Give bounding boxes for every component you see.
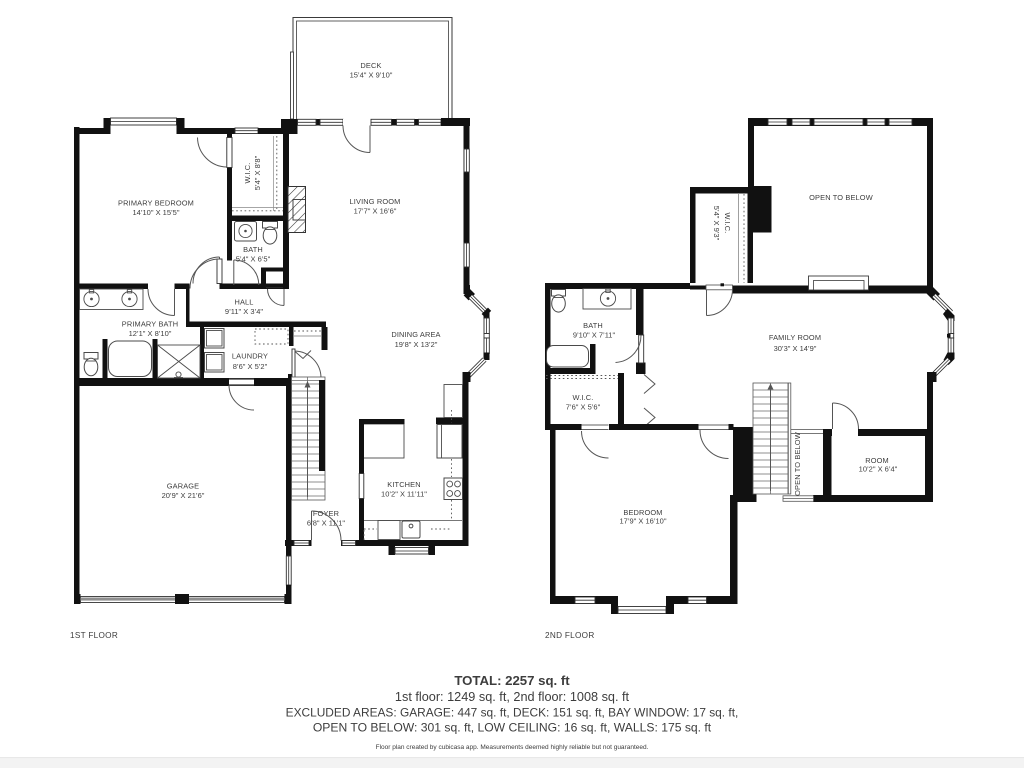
svg-text:12’1" X 8’10": 12’1" X 8’10" — [129, 329, 172, 338]
svg-text:5’4" X 6’5": 5’4" X 6’5" — [236, 255, 271, 264]
svg-text:10’2" X 6’4": 10’2" X 6’4" — [859, 465, 898, 474]
svg-text:OPEN TO BELOW: 301 sq. ft, LOW: OPEN TO BELOW: 301 sq. ft, LOW CEILING: … — [313, 721, 712, 735]
svg-text:PRIMARY BEDROOM: PRIMARY BEDROOM — [118, 199, 194, 208]
svg-text:BATH: BATH — [243, 245, 263, 254]
svg-text:5’4" X 8’8": 5’4" X 8’8" — [253, 155, 262, 190]
svg-text:20’9" X 21’6": 20’9" X 21’6" — [162, 491, 205, 500]
svg-text:FOYER: FOYER — [313, 509, 339, 518]
svg-text:KITCHEN: KITCHEN — [387, 480, 421, 489]
svg-text:DINING AREA: DINING AREA — [391, 330, 440, 339]
svg-text:1ST FLOOR: 1ST FLOOR — [70, 631, 118, 640]
svg-text:15’4" X 9’10": 15’4" X 9’10" — [350, 71, 393, 80]
svg-text:30’3" X 14’9": 30’3" X 14’9" — [774, 344, 817, 353]
svg-text:Floor plan created by cubicasa: Floor plan created by cubicasa app. Meas… — [376, 744, 649, 751]
svg-text:PRIMARY BATH: PRIMARY BATH — [122, 320, 178, 329]
svg-text:10’2" X 11’11": 10’2" X 11’11" — [381, 490, 427, 499]
svg-text:19’8" X 13’2": 19’8" X 13’2" — [395, 340, 438, 349]
svg-text:BATH: BATH — [583, 321, 603, 330]
svg-text:EXCLUDED AREAS: GARAGE: 447 sq: EXCLUDED AREAS: GARAGE: 447 sq. ft, DECK… — [286, 706, 739, 720]
svg-text:W.I.C.: W.I.C. — [572, 393, 593, 402]
svg-text:2ND FLOOR: 2ND FLOOR — [545, 631, 595, 640]
svg-text:HALL: HALL — [234, 298, 253, 307]
svg-text:OPEN TO BELOW: OPEN TO BELOW — [809, 193, 873, 202]
svg-text:17’7" X 16’6": 17’7" X 16’6" — [354, 207, 397, 216]
svg-text:FAMILY ROOM: FAMILY ROOM — [769, 333, 821, 342]
svg-text:8’6" X 5’2": 8’6" X 5’2" — [233, 362, 268, 371]
svg-text:LAUNDRY: LAUNDRY — [232, 352, 268, 361]
svg-text:14’10" X 15’5": 14’10" X 15’5" — [132, 208, 179, 217]
svg-text:9’10" X 7’11": 9’10" X 7’11" — [573, 331, 616, 340]
svg-text:9’11" X 3’4": 9’11" X 3’4" — [225, 307, 263, 316]
svg-text:LIVING ROOM: LIVING ROOM — [350, 197, 401, 206]
svg-text:W.I.C.: W.I.C. — [723, 212, 732, 233]
svg-text:6’8" X 11’1": 6’8" X 11’1" — [307, 519, 345, 528]
svg-text:W.I.C.: W.I.C. — [243, 162, 252, 183]
svg-text:OPEN TO BELOW: OPEN TO BELOW — [793, 432, 802, 496]
svg-text:7’6" X 5’6": 7’6" X 5’6" — [566, 403, 601, 412]
svg-text:DECK: DECK — [360, 61, 381, 70]
svg-text:1st floor: 1249 sq. ft, 2nd fl: 1st floor: 1249 sq. ft, 2nd floor: 1008 … — [395, 690, 630, 704]
svg-text:5’4" X 9’3": 5’4" X 9’3" — [712, 206, 721, 241]
svg-text:GARAGE: GARAGE — [167, 482, 200, 491]
svg-text:TOTAL: 2257 sq. ft: TOTAL: 2257 sq. ft — [454, 673, 570, 688]
svg-text:17’9" X 16’10": 17’9" X 16’10" — [619, 517, 666, 526]
